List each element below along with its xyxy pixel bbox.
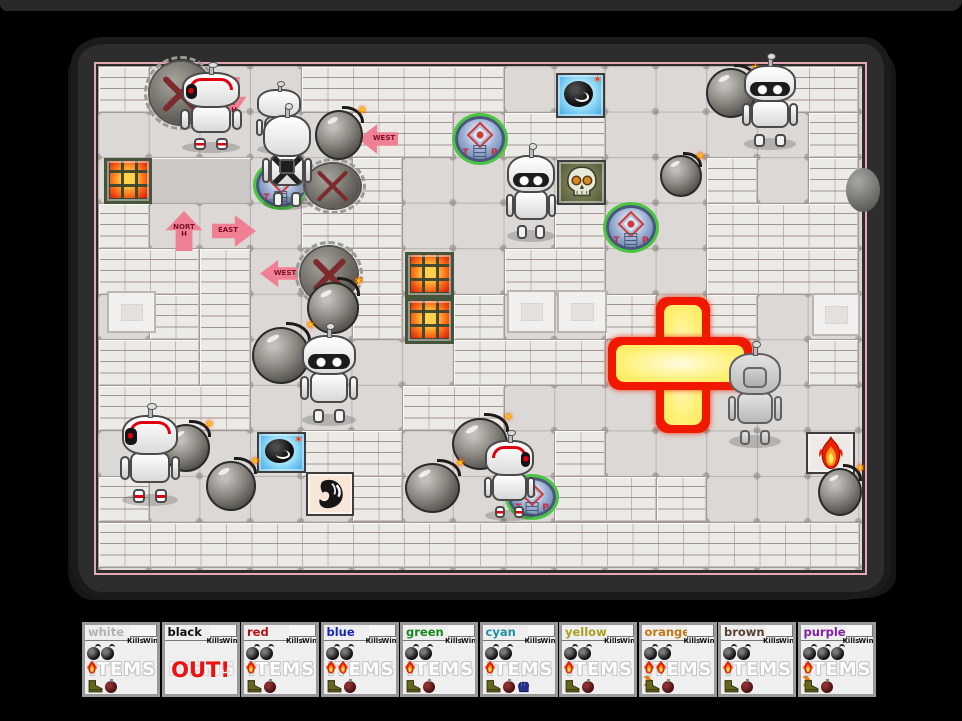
- wall-block: [554, 430, 606, 477]
- robot-ant: [327, 327, 332, 338]
- boot-item-icon: [804, 680, 819, 693]
- robot-arm: [300, 376, 309, 400]
- robot-shadow: [729, 435, 780, 448]
- owned-item-icons: [724, 680, 753, 693]
- kills-box: [289, 625, 303, 637]
- robot-front: [504, 150, 558, 242]
- wall-block: [706, 248, 859, 295]
- wall-block: [656, 476, 708, 523]
- boot-item-icon: [486, 680, 501, 693]
- robot-ant: [148, 407, 153, 418]
- kills-box: [766, 625, 780, 637]
- flame-count-icons: [245, 660, 257, 675]
- owned-item-icons: [565, 680, 594, 693]
- fuse-spark-icon: ✶: [455, 456, 465, 470]
- bomb: ✶: [405, 463, 460, 513]
- teleporter: TP: [606, 205, 656, 250]
- wall-block: [504, 248, 606, 295]
- robot-arm: [774, 396, 783, 421]
- direction-arrow-label: WEST: [260, 258, 298, 289]
- robot-leg: [775, 134, 786, 148]
- wins-box: [143, 625, 157, 637]
- flame-count-icons: [86, 660, 98, 675]
- dark-bomb-item-icon: [423, 681, 435, 693]
- wall-block: [554, 476, 656, 523]
- bomb-count-icon: [831, 647, 844, 660]
- kills-label: Kills: [684, 637, 701, 645]
- flame-items: [325, 660, 349, 675]
- player-panel-brown: brownKillsWinsITEMS: [718, 622, 796, 697]
- dark-bomb-item-icon: [662, 681, 674, 693]
- robot-leg: [273, 192, 283, 207]
- bomb-count-icon: [326, 647, 339, 660]
- bomb-count-icon: [485, 647, 498, 660]
- flame-count-icons: [802, 660, 814, 675]
- items-ghost-label: ITEMS: [805, 659, 872, 680]
- boot-item-icon: [247, 680, 262, 693]
- wins-box: [382, 625, 396, 637]
- wins-label: Wins: [461, 637, 478, 645]
- kills-label: Kills: [525, 637, 542, 645]
- wins-label: Wins: [382, 637, 399, 645]
- flame-count-icon: [802, 660, 814, 675]
- bomb: ✶: [206, 461, 256, 511]
- robot-ant: [278, 84, 283, 92]
- player-name: red: [244, 625, 290, 641]
- item-tile-bomb: ✶: [556, 73, 605, 118]
- owned-item-icons: [804, 680, 833, 693]
- robot-leg: [155, 489, 167, 503]
- robot-front: [740, 60, 800, 150]
- kills-label: Kills: [286, 637, 303, 645]
- flame-items: [484, 660, 496, 675]
- boot-item-icon: [565, 680, 580, 693]
- teleporter-ladder: [624, 233, 637, 248]
- flame-count-icon: [563, 660, 575, 675]
- items-ghost-label: ITEMS: [566, 659, 633, 680]
- robot-torso: [191, 105, 232, 132]
- wall-block: [706, 203, 859, 250]
- bomb-count-icon: [723, 647, 736, 660]
- fuse-spark-icon: ✶: [294, 433, 303, 446]
- panel-items: ITEMS: [801, 649, 873, 693]
- dark-bomb-item-icon: [821, 681, 833, 693]
- dark-bomb-item-icon: [105, 681, 117, 693]
- robot-leg: [313, 409, 324, 423]
- player-panel-blue: blueKillsWinsITEMS: [321, 622, 399, 697]
- robot-gray: [726, 348, 784, 448]
- spiked-mine: [306, 164, 360, 208]
- bomb-count-icon: [803, 647, 816, 660]
- kills-box: [130, 625, 144, 637]
- bomb-count-icon: [260, 647, 273, 660]
- owned-item-icons: [327, 680, 356, 693]
- panel-header: blackKillsWins: [165, 625, 237, 649]
- bomb-count-icon: [737, 647, 750, 660]
- bomb: ✶: [660, 155, 702, 197]
- panel-items: ITEMS: [642, 649, 714, 693]
- lava-grate-tile: [104, 158, 152, 204]
- items-ghost-label: ITEMS: [89, 659, 156, 680]
- bomb-count-icon: [499, 647, 512, 660]
- panel-items: ITEMS: [721, 649, 793, 693]
- robot-leg: [133, 489, 145, 503]
- kills-label: Kills: [366, 637, 383, 645]
- robot-shadow: [302, 414, 357, 426]
- wins-label: Wins: [143, 637, 160, 645]
- wall-block: [605, 294, 657, 341]
- item-tile-skull: [557, 160, 606, 205]
- fuse-spark-icon: ✶: [593, 73, 602, 86]
- robot-leg: [291, 192, 301, 207]
- owned-item-icons: [645, 680, 674, 693]
- flame-count-icons: [722, 660, 734, 675]
- flame-count-icons: [643, 660, 667, 675]
- player-name: yellow: [562, 625, 608, 641]
- wall-block: [554, 203, 606, 250]
- robot-head: [302, 335, 357, 375]
- dark-bomb-item-icon: [741, 681, 753, 693]
- teleporter-letter: P: [642, 236, 649, 246]
- bomb-count-icon: [658, 647, 671, 660]
- items-ghost-label: ITEMS: [725, 659, 792, 680]
- fuse-spark-icon: ✶: [695, 149, 705, 163]
- bomb: ✶: [818, 468, 862, 516]
- player-name: black: [165, 625, 211, 641]
- wall-block: [706, 294, 758, 341]
- panel-items: ITEMS: [244, 649, 316, 693]
- dark-bomb-item-icon: [503, 681, 515, 693]
- bomb-count-icon: [405, 647, 418, 660]
- robot-leg: [334, 409, 345, 423]
- bomb-icon: [564, 81, 593, 107]
- panel-items: ITEMS: [562, 649, 634, 693]
- wall-block: [808, 112, 860, 159]
- wins-box: [859, 625, 873, 637]
- kills-box: [846, 625, 860, 637]
- panel-items: ITEMS: [85, 649, 157, 693]
- wall-block: [98, 203, 150, 250]
- robot-backpack: [260, 110, 314, 210]
- bomb-count-icons: [326, 647, 353, 660]
- robot-ant: [209, 65, 214, 75]
- player-panel-cyan: cyanKillsWinsITEMS: [480, 622, 558, 697]
- robot-head: [122, 415, 178, 455]
- flame-count-icon: [484, 660, 496, 675]
- boot-item-icon: [88, 680, 103, 693]
- robot-torso: [310, 372, 348, 403]
- floor-plate: [812, 293, 860, 336]
- robot-leg: [216, 138, 228, 151]
- bomb-count-icons: [644, 647, 671, 660]
- flame-items: [245, 660, 257, 675]
- flame-count-icons: [484, 660, 496, 675]
- panel-items: ITEMS: [483, 649, 555, 693]
- bomb-count-icon: [87, 647, 100, 660]
- robot-leg: [535, 225, 545, 239]
- robot-head: [485, 440, 533, 476]
- robot-ant: [285, 107, 290, 118]
- robot-leg: [760, 430, 770, 445]
- robot-leg: [517, 225, 527, 239]
- robot-torso: [492, 473, 526, 500]
- kills-label: Kills: [604, 637, 621, 645]
- robot-front: [298, 330, 360, 426]
- floor-plate: [557, 290, 607, 333]
- panel-items: ITEMSOUT!: [165, 649, 237, 693]
- dark-bomb-item-icon: [264, 681, 276, 693]
- item-tile-swirl: [306, 472, 354, 516]
- game-screen: ✶✶TPTPTPTPSOUTHWESTNORTHEASTWEST✶✶✶✶✶✶✶✶…: [0, 0, 962, 721]
- robot-shadow: [507, 230, 555, 242]
- robot-arm: [548, 194, 556, 217]
- teleporter-ladder: [473, 145, 486, 161]
- robot-ant: [753, 345, 758, 356]
- teleporter-letter: T: [462, 148, 468, 158]
- kills-label: Kills: [763, 637, 780, 645]
- kills-box: [210, 625, 224, 637]
- flame-items: [404, 660, 416, 675]
- direction-arrow-north: NORTH: [163, 211, 205, 251]
- flame-count-icons: [404, 660, 416, 675]
- robot-leg: [194, 138, 206, 151]
- robot-torso: [130, 452, 170, 483]
- wall-block: [149, 294, 201, 341]
- teleporter-letter: T: [613, 236, 619, 246]
- floor-plate: [107, 291, 156, 333]
- player-name: white: [85, 625, 131, 641]
- robot-torso: [751, 100, 788, 129]
- kills-label: Kills: [207, 637, 224, 645]
- robot-side-left: [178, 68, 244, 153]
- direction-arrow-east: EAST: [212, 213, 256, 249]
- robot-arm: [527, 477, 535, 498]
- flame-count-icon: [643, 660, 655, 675]
- flame-count-icon: [245, 660, 257, 675]
- player-panel-yellow: yellowKillsWinsITEMS: [559, 622, 637, 697]
- scoreboard: whiteKillsWinsITEMSblackKillsWinsITEMSOU…: [0, 620, 962, 721]
- wins-box: [541, 625, 555, 637]
- dark-bomb-item-icon: [582, 681, 594, 693]
- wall-block: [98, 339, 200, 386]
- robot-arm: [120, 456, 130, 480]
- wins-box: [302, 625, 316, 637]
- wall-block: [98, 66, 150, 113]
- robot-ant: [529, 147, 534, 157]
- bomb-count-icon: [101, 647, 114, 660]
- robot-leg: [495, 506, 505, 519]
- robot-arm: [304, 158, 312, 183]
- border-top-strip: [0, 0, 962, 11]
- player-name: green: [403, 625, 449, 641]
- boot-item-icon: [724, 680, 739, 693]
- items-ghost-label: ITEMS: [487, 659, 554, 680]
- robot-torso: [737, 392, 773, 424]
- robot-arm: [232, 109, 242, 130]
- wall-block: [808, 339, 860, 386]
- robot-arm: [349, 376, 358, 400]
- robot-head: [744, 65, 797, 103]
- wall-block: [98, 522, 860, 569]
- kills-box: [687, 625, 701, 637]
- flame-items: [86, 660, 98, 675]
- lava-grate-tile: [405, 298, 454, 344]
- wall-block: [453, 294, 505, 341]
- flame-count-icon: [86, 660, 98, 675]
- dark-bomb-item-icon: [344, 681, 356, 693]
- robot-arm: [789, 103, 798, 126]
- wins-box: [700, 625, 714, 637]
- player-name: brown: [721, 625, 767, 641]
- wins-box: [223, 625, 237, 637]
- robot-shadow: [485, 510, 533, 521]
- robot-torso: [514, 190, 547, 219]
- direction-arrow-west: WEST: [260, 258, 298, 289]
- wall-block: [706, 157, 758, 204]
- robot-arm: [484, 477, 492, 498]
- wins-label: Wins: [302, 637, 319, 645]
- robot-side-left: [118, 410, 182, 506]
- owned-item-icons: [247, 680, 276, 693]
- player-panel-green: greenKillsWinsITEMS: [400, 622, 478, 697]
- boot-item-icon: [645, 680, 660, 693]
- flame-items: [722, 660, 734, 675]
- flame-count-icon: [404, 660, 416, 675]
- kills-box: [528, 625, 542, 637]
- robot-leg: [754, 134, 765, 148]
- explosion-core: [616, 345, 744, 382]
- flame-count-icon: [337, 660, 349, 675]
- player-name: blue: [324, 625, 370, 641]
- items-ghost-label: ITEMS: [248, 659, 315, 680]
- teleporter-letter: P: [491, 148, 498, 158]
- wall-block: [301, 66, 505, 113]
- robot-shadow: [182, 142, 240, 153]
- wins-box: [620, 625, 634, 637]
- robot-arm: [171, 456, 181, 480]
- player-name: cyan: [483, 625, 529, 641]
- bomb-count-icons: [485, 647, 512, 660]
- robot-arm: [180, 109, 190, 130]
- floor-plate: [507, 290, 556, 333]
- robot-arm: [262, 158, 270, 183]
- robot-side-right: [482, 436, 537, 521]
- wall-block: [149, 157, 251, 204]
- flame-count-icons: [563, 660, 575, 675]
- wall-block: [199, 248, 251, 386]
- teleporter: TP: [455, 116, 505, 162]
- player-panel-purple: purpleKillsWinsITEMS: [798, 622, 876, 697]
- flame-count-icon: [325, 660, 337, 675]
- bomb: ✶: [315, 110, 363, 160]
- wins-label: Wins: [541, 637, 558, 645]
- wins-label: Wins: [779, 637, 796, 645]
- flame-count-icons: [325, 660, 349, 675]
- robot-ant: [768, 57, 773, 67]
- wall-block: [301, 430, 403, 477]
- wins-label: Wins: [700, 637, 717, 645]
- robot-head: [182, 72, 240, 108]
- flame-items: [563, 660, 575, 675]
- fuse-spark-icon: ✶: [354, 274, 364, 288]
- robot-ant: [508, 433, 513, 443]
- bomb-count-icons: [803, 647, 844, 660]
- kills-box: [448, 625, 462, 637]
- bomb-count-icons: [87, 647, 114, 660]
- wins-box: [779, 625, 793, 637]
- bomb-icon: [265, 439, 294, 463]
- robot-leg: [740, 430, 750, 445]
- panel-items: ITEMS: [403, 649, 475, 693]
- owned-item-icons: [486, 680, 530, 693]
- panel-items: ITEMS: [324, 649, 396, 693]
- direction-arrow-label: NORTH: [163, 211, 205, 251]
- items-ghost-label: ITEMS: [407, 659, 474, 680]
- wall-block: [352, 476, 404, 523]
- border-rock: [846, 168, 880, 212]
- player-panel-orange: orangeKillsWinsITEMS: [639, 622, 717, 697]
- robot-shadow: [263, 197, 311, 210]
- wins-label: Wins: [223, 637, 240, 645]
- bomb-count-icons: [723, 647, 750, 660]
- game-arena[interactable]: ✶✶TPTPTPTPSOUTHWESTNORTHEASTWEST✶✶✶✶✶✶✶✶…: [98, 66, 862, 570]
- bomb-count-icons: [246, 647, 273, 660]
- wins-label: Wins: [859, 637, 876, 645]
- robot-head: [729, 353, 780, 395]
- wall-block: [98, 248, 200, 295]
- robot-arm: [506, 194, 514, 217]
- kills-box: [607, 625, 621, 637]
- owned-item-icons: [406, 680, 435, 693]
- out-label: OUT!: [165, 658, 237, 682]
- owned-item-icons: [88, 680, 117, 693]
- kills-label: Kills: [127, 637, 144, 645]
- robot-shadow: [744, 138, 797, 150]
- player-name: purple: [801, 625, 847, 641]
- robot-head: [263, 115, 311, 157]
- fuse-spark-icon: ✶: [250, 454, 260, 468]
- lava-grate-tile: [405, 252, 454, 298]
- bomb-count-icons: [564, 647, 591, 660]
- robot-shadow: [122, 494, 178, 506]
- kills-label: Kills: [445, 637, 462, 645]
- robot-arm: [728, 396, 737, 421]
- bomb-count-icon: [578, 647, 591, 660]
- player-name: orange: [642, 625, 688, 641]
- wins-label: Wins: [620, 637, 637, 645]
- robot-torso: [270, 154, 303, 186]
- kills-box: [369, 625, 383, 637]
- player-panel-black: blackKillsWinsITEMSOUT!: [162, 622, 240, 697]
- robot-arm: [742, 103, 751, 126]
- player-panel-white: whiteKillsWinsITEMS: [82, 622, 160, 697]
- fuse-spark-icon: ✶: [503, 410, 513, 424]
- kills-label: Kills: [843, 637, 860, 645]
- bomb-count-icon: [246, 647, 259, 660]
- bomb-count-icon: [419, 647, 432, 660]
- direction-arrow-label: EAST: [212, 213, 256, 249]
- robot-head: [507, 155, 555, 194]
- fuse-spark-icon: ✶: [856, 461, 866, 475]
- bomb-count-icons: [405, 647, 432, 660]
- wall-block: [453, 339, 606, 386]
- bomb-count-icon: [644, 647, 657, 660]
- wins-box: [461, 625, 475, 637]
- bomb-count-icon: [817, 647, 830, 660]
- fuse-spark-icon: ✶: [357, 103, 367, 117]
- boot-item-icon: [406, 680, 421, 693]
- boot-item-icon: [327, 680, 342, 693]
